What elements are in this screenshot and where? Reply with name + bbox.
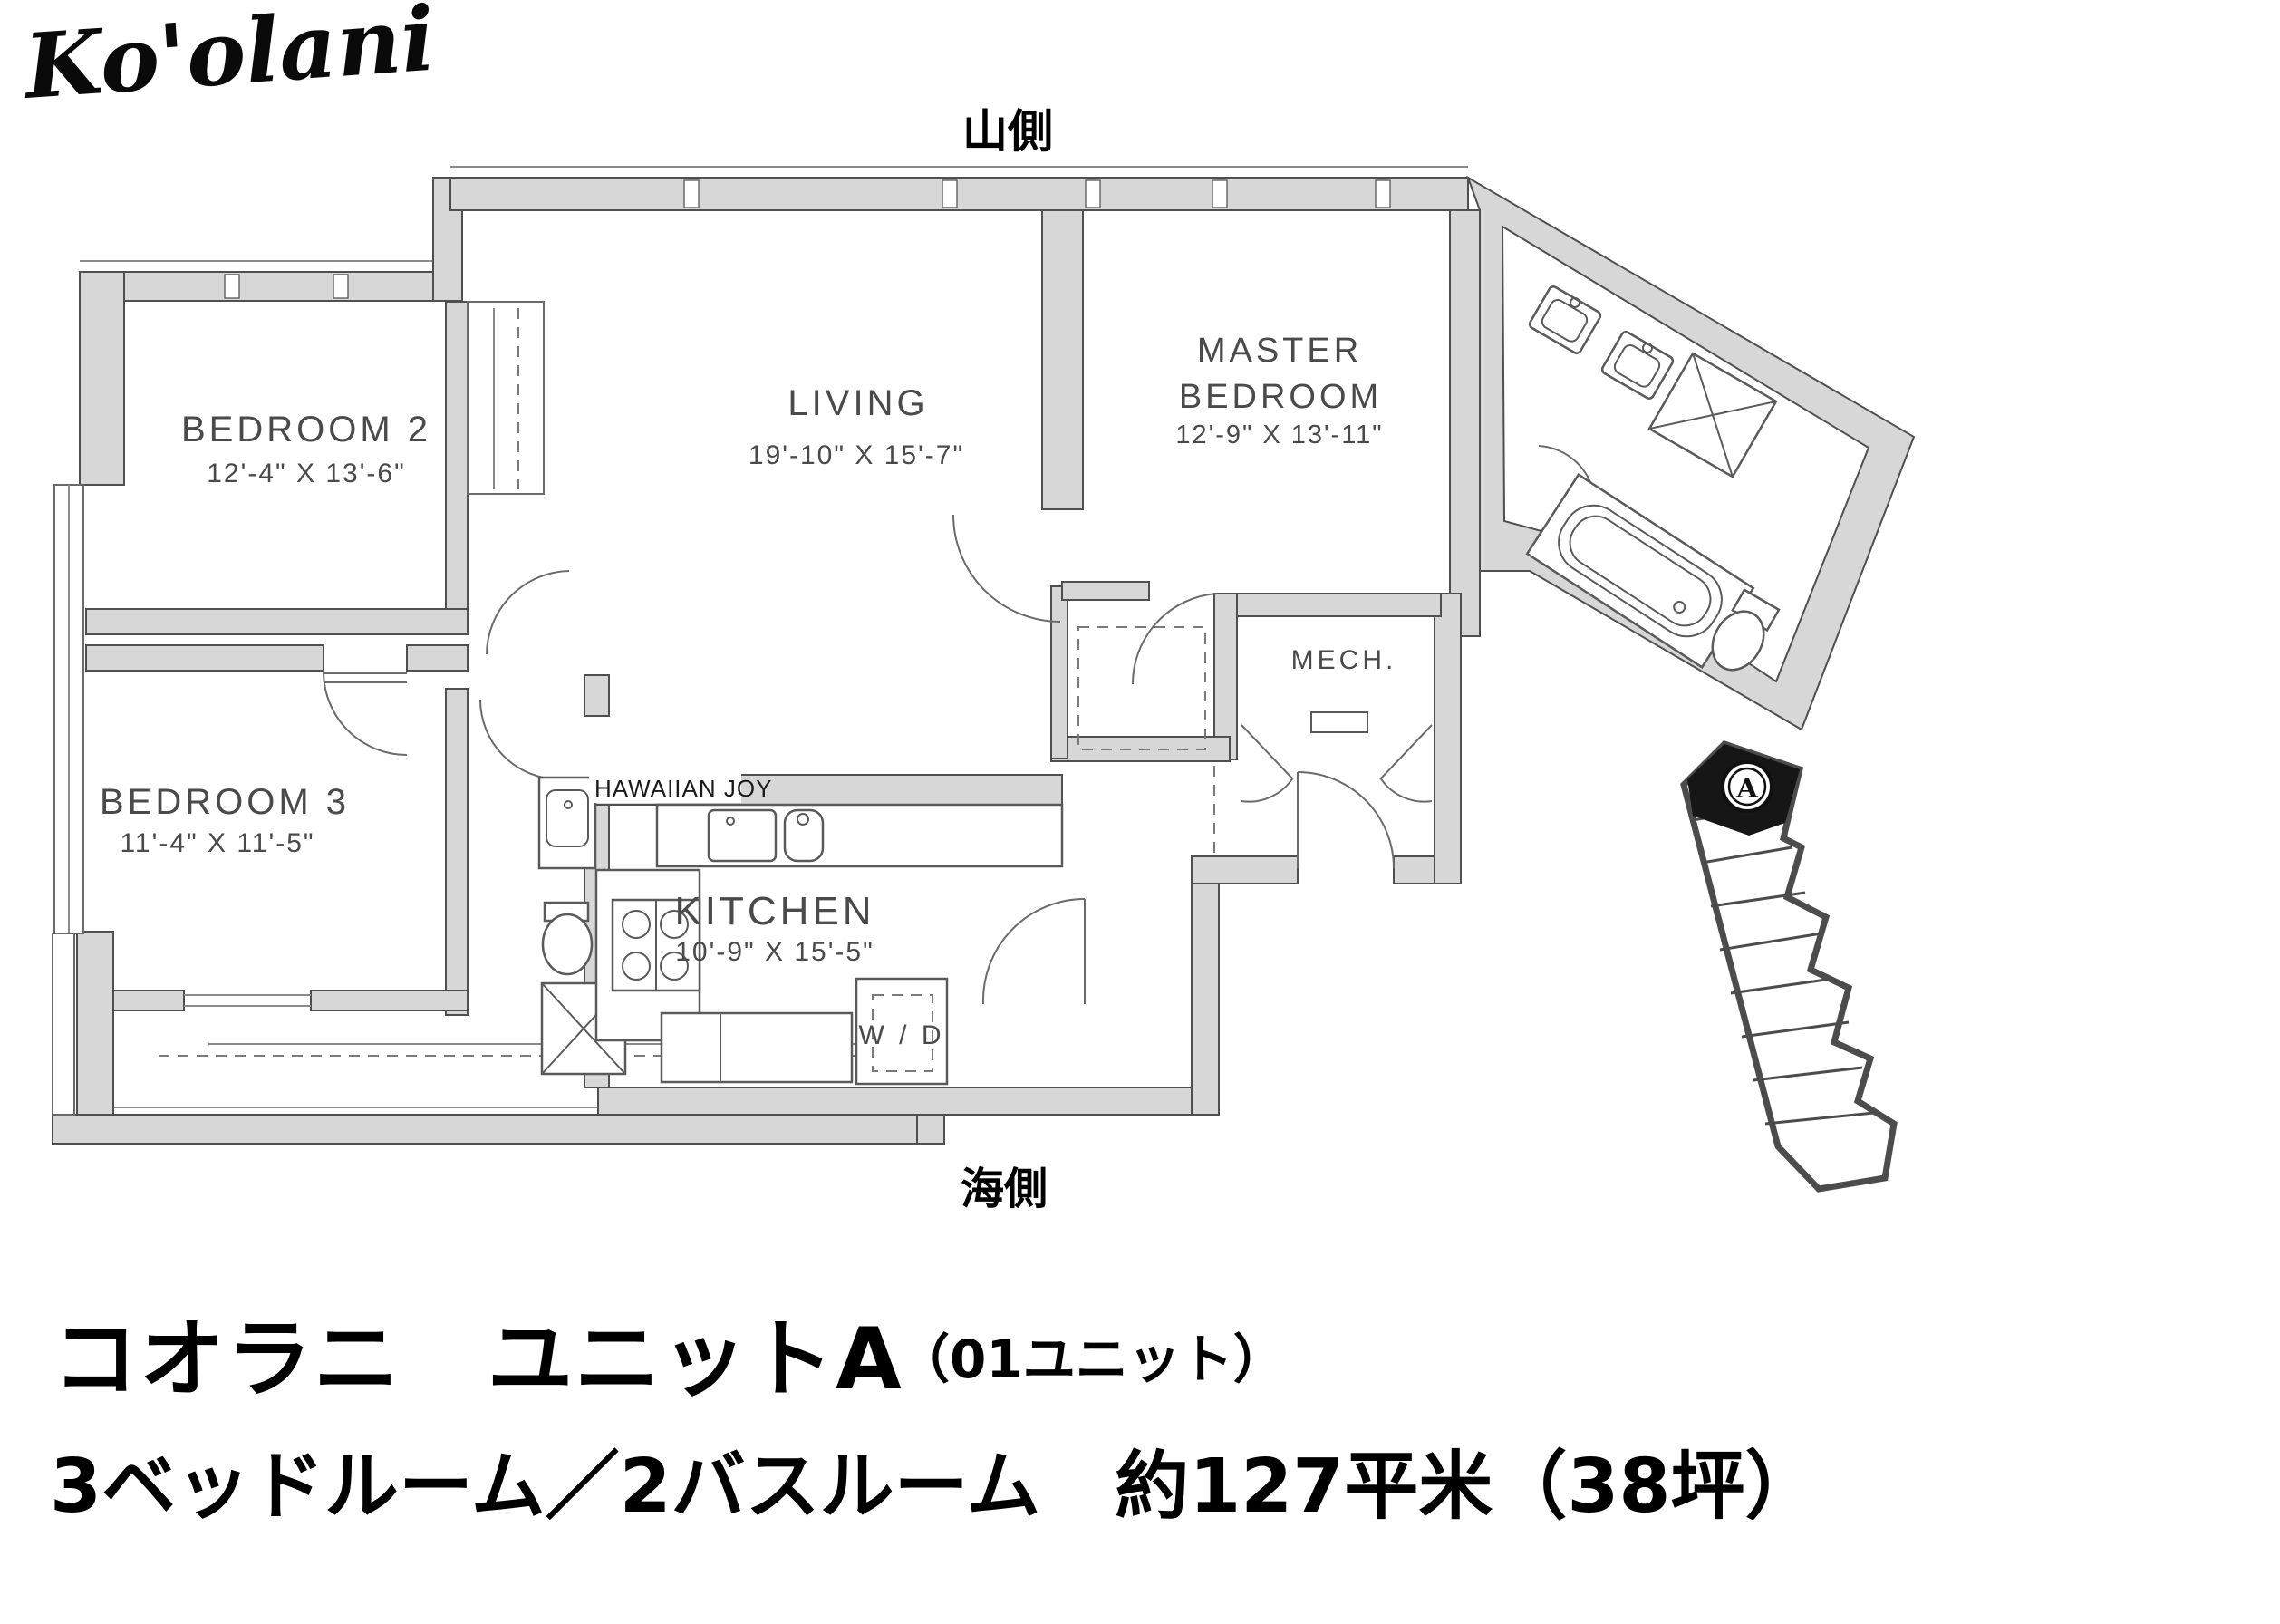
room-name: BEDROOM 3 <box>100 782 350 822</box>
orientation-label-ocean: 海側 <box>961 1164 1048 1214</box>
room-label-wd: W / D <box>859 1020 945 1050</box>
watermark-text: HAWAIIAN JOY <box>594 775 772 802</box>
room-name: BEDROOM <box>1179 378 1382 416</box>
room-label-bedroom2: BEDROOM 2 12'-4" X 13'-6" <box>181 410 431 488</box>
room-label-mech: MECH. <box>1291 645 1397 675</box>
room-label-master-bedroom: MASTER BEDROOM 12'-9" X 13'-11" <box>1175 332 1383 449</box>
room-label-bedroom3: BEDROOM 3 11'-4" X 11'-5" <box>100 782 350 858</box>
orientation-label-mountain: 山側 <box>962 105 1053 158</box>
title-line1-sub: （01ユニット） <box>897 1329 1286 1390</box>
room-dims: 12'-9" X 13'-11" <box>1175 420 1383 449</box>
title-line1-main: コオラニ ユニットA <box>53 1310 903 1409</box>
doors <box>324 446 1595 1004</box>
room-label-living: LIVING 19'-10" X 15'-7" <box>749 383 964 470</box>
room-name: MASTER <box>1197 332 1362 370</box>
room-name: LIVING <box>787 383 928 423</box>
room-dims: 12'-4" X 13'-6" <box>207 459 406 488</box>
floor-plan: Ko'olani 山側 海側 <box>0 0 2280 1624</box>
unit-marker-letter: A <box>1735 773 1758 805</box>
room-dims: 10'-9" X 15'-5" <box>675 937 874 967</box>
title-line2: 3ベッドルーム／2バスルーム 約127平米（38坪） <box>50 1444 1819 1530</box>
room-dims: 19'-10" X 15'-7" <box>749 440 964 470</box>
room-dims: 11'-4" X 11'-5" <box>120 828 314 858</box>
room-name: BEDROOM 2 <box>181 410 431 449</box>
sink-icon <box>539 778 595 868</box>
key-plan: A <box>1684 744 1894 1189</box>
closet <box>468 302 544 494</box>
toilet-icon <box>543 903 592 974</box>
unit-marker-badge: A <box>1723 762 1772 811</box>
room-name: KITCHEN <box>674 889 874 933</box>
floor-plan-page: Ko'olani 山側 海側 <box>0 0 2280 1624</box>
double-sink-icon <box>709 810 823 861</box>
room-label-kitchen: KITCHEN 10'-9" X 15'-5" <box>674 889 874 967</box>
koolani-logo: Ko'olani <box>19 0 439 120</box>
title-block: コオラニ ユニットA （01ユニット） 3ベッドルーム／2バスルーム 約127平… <box>50 1310 1819 1530</box>
